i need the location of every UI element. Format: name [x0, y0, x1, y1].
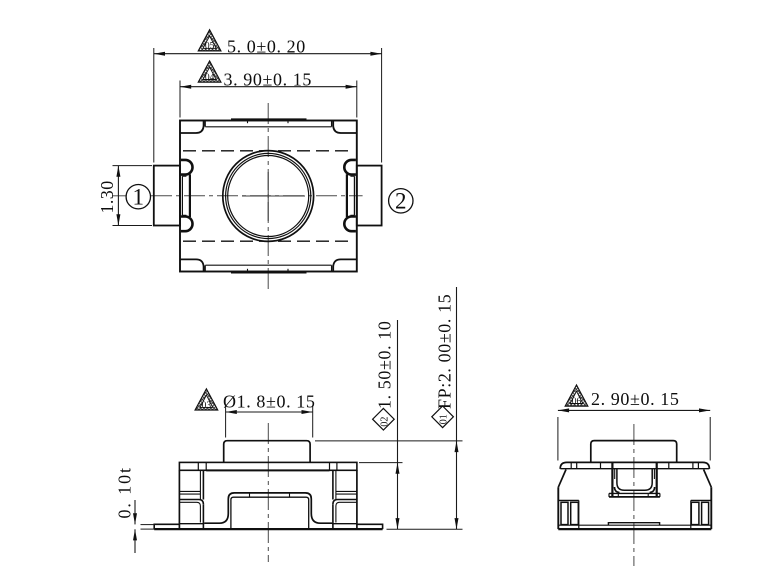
- svg-text:2. 90±0. 15: 2. 90±0. 15: [591, 389, 679, 409]
- svg-text:5. 0±0. 20: 5. 0±0. 20: [227, 36, 306, 56]
- svg-text:Ø1. 8±0. 15: Ø1. 8±0. 15: [223, 391, 315, 411]
- svg-text:06: 06: [572, 397, 582, 407]
- svg-text:05: 05: [205, 42, 215, 52]
- svg-text:04: 04: [205, 73, 215, 83]
- svg-text:03: 03: [202, 401, 212, 411]
- svg-text:02: 02: [379, 417, 390, 427]
- svg-text:01: 01: [439, 414, 450, 424]
- svg-text:FP:2. 00±0. 15: FP:2. 00±0. 15: [435, 294, 455, 409]
- svg-text:1.30: 1.30: [97, 180, 117, 213]
- svg-text:2: 2: [395, 189, 407, 214]
- svg-text:1. 50±0. 10: 1. 50±0. 10: [375, 321, 395, 409]
- svg-text:1: 1: [133, 185, 145, 210]
- svg-text:0. 10t: 0. 10t: [115, 466, 135, 518]
- svg-text:3. 90±0. 15: 3. 90±0. 15: [224, 69, 312, 89]
